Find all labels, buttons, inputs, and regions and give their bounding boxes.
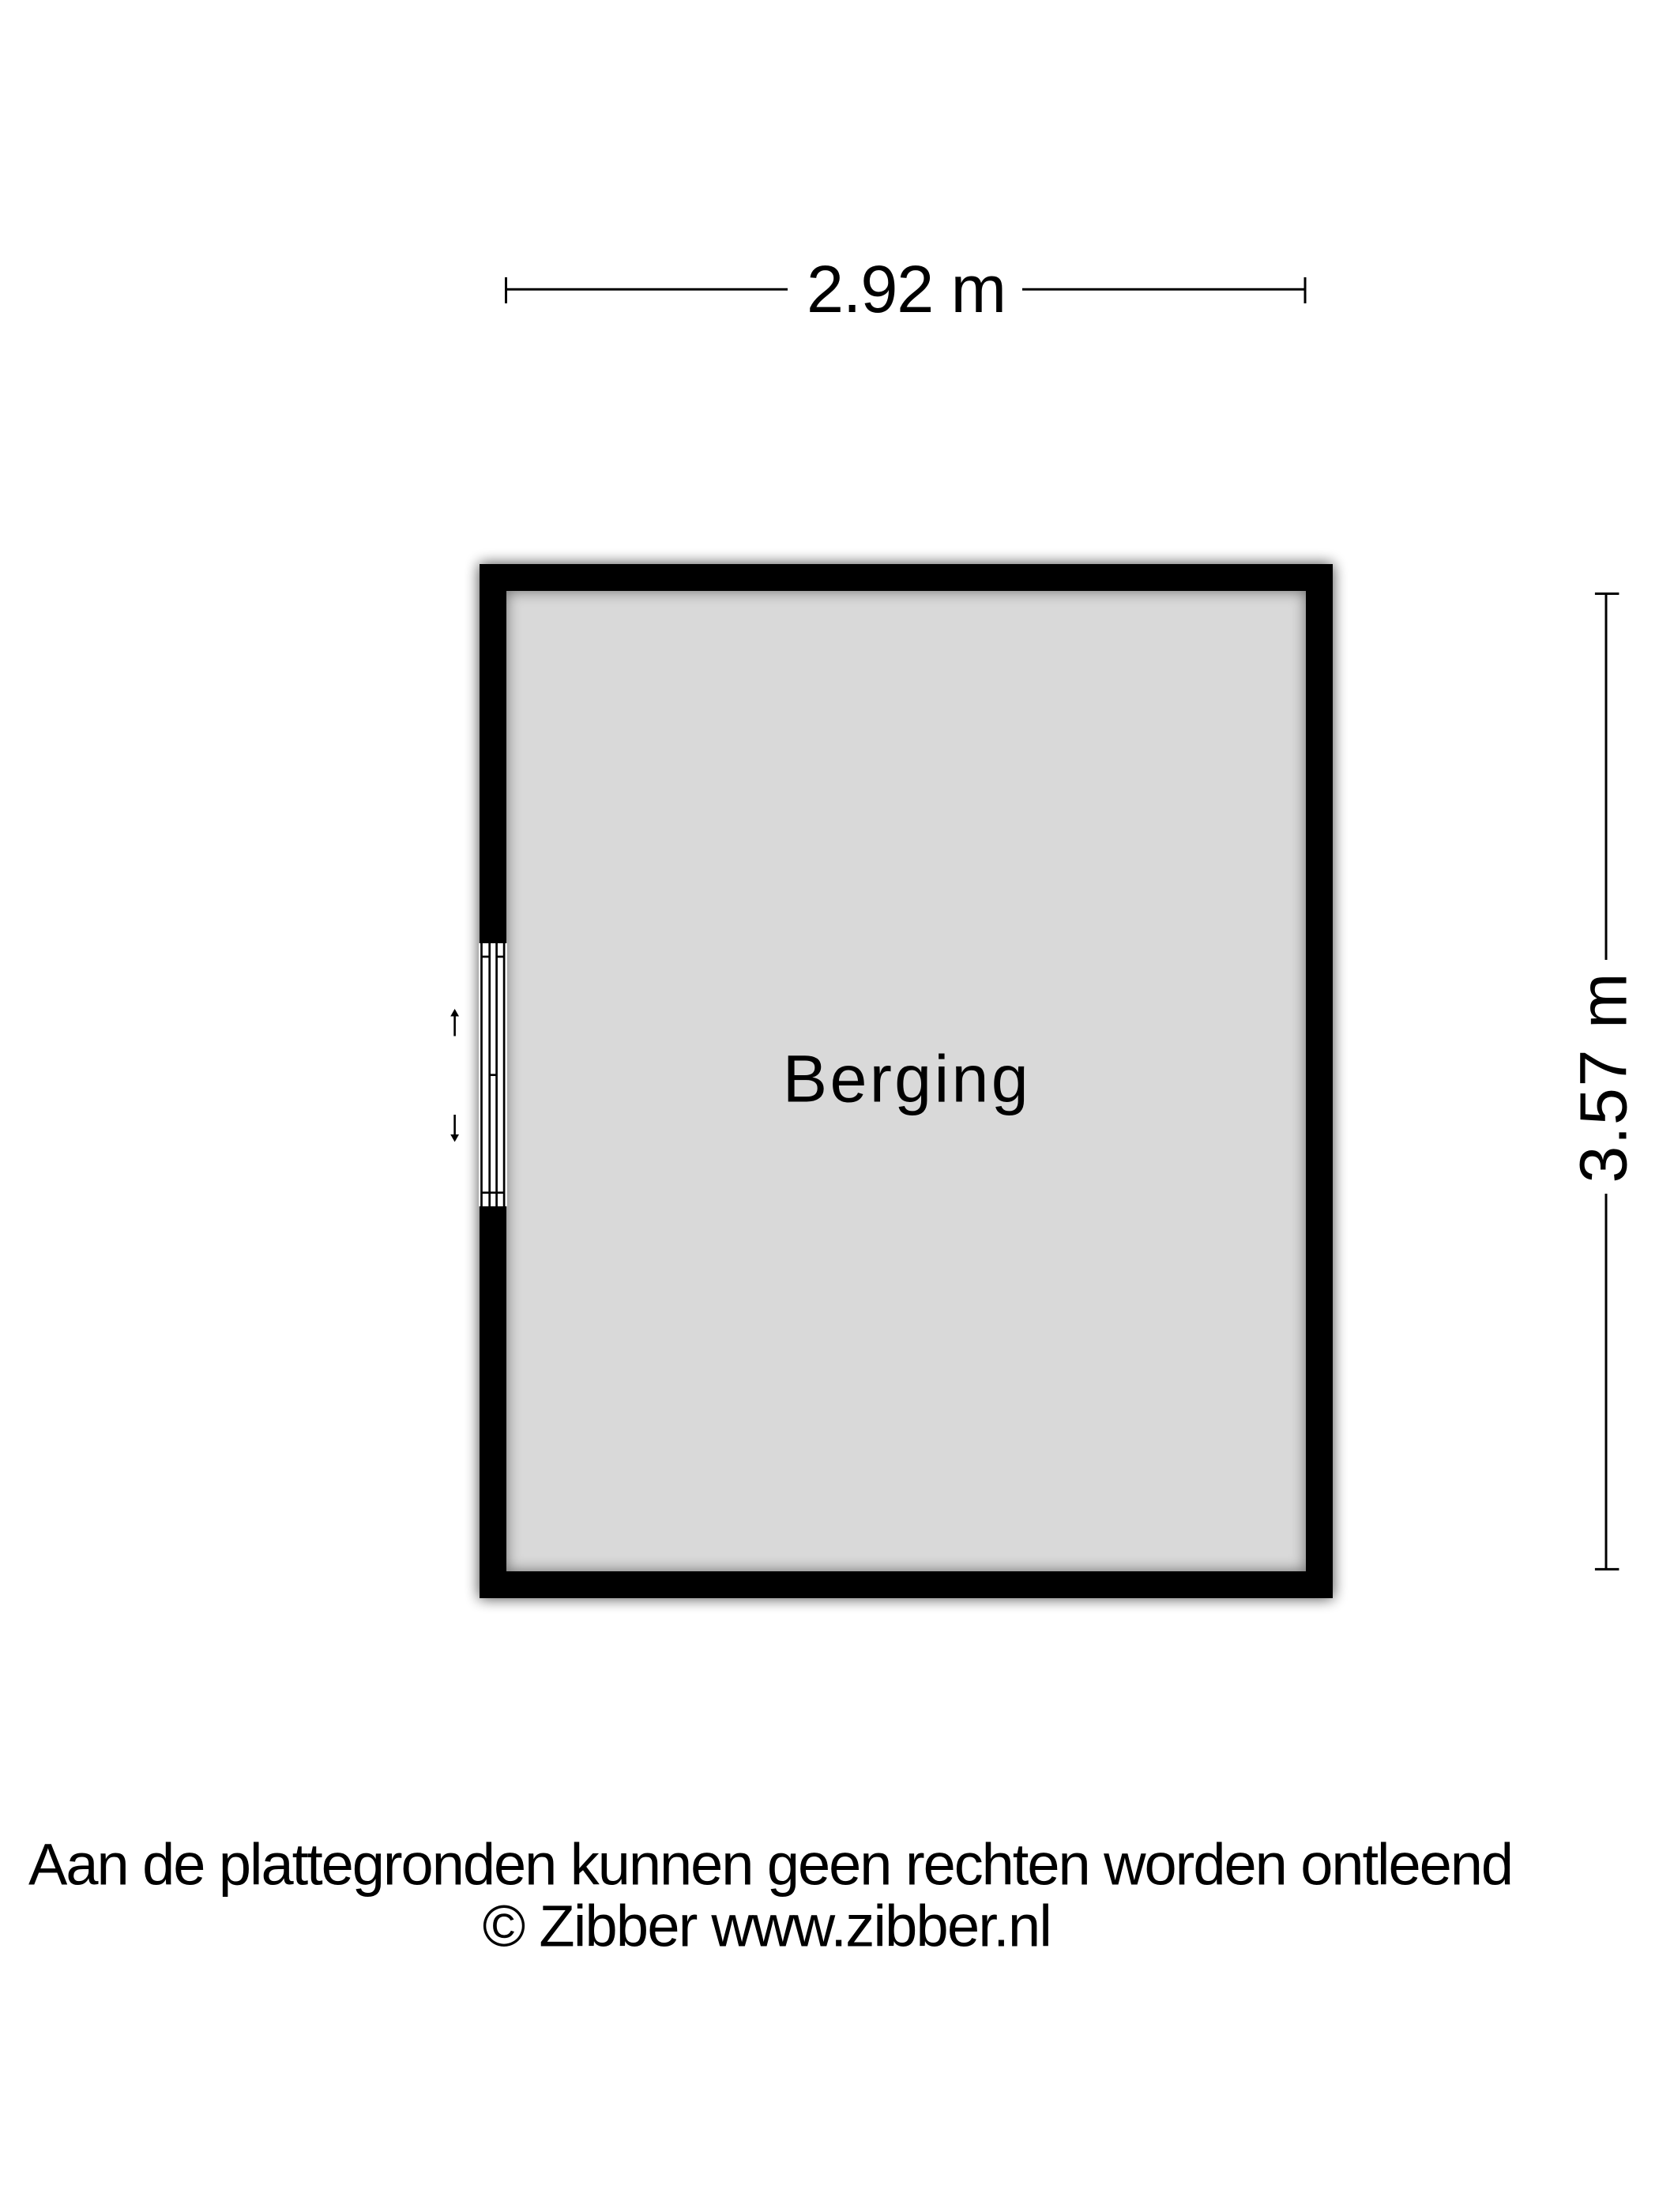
svg-text:2.92 m: 2.92 m	[807, 252, 1006, 326]
svg-text:© Zibber www.zibber.nl: © Zibber www.zibber.nl	[483, 1894, 1052, 1959]
svg-text:Aan de plattegronden kunnen ge: Aan de plattegronden kunnen geen rechten…	[28, 1832, 1514, 1898]
svg-text:3.57 m: 3.57 m	[1567, 973, 1641, 1183]
svg-text:Berging: Berging	[783, 1042, 1029, 1116]
